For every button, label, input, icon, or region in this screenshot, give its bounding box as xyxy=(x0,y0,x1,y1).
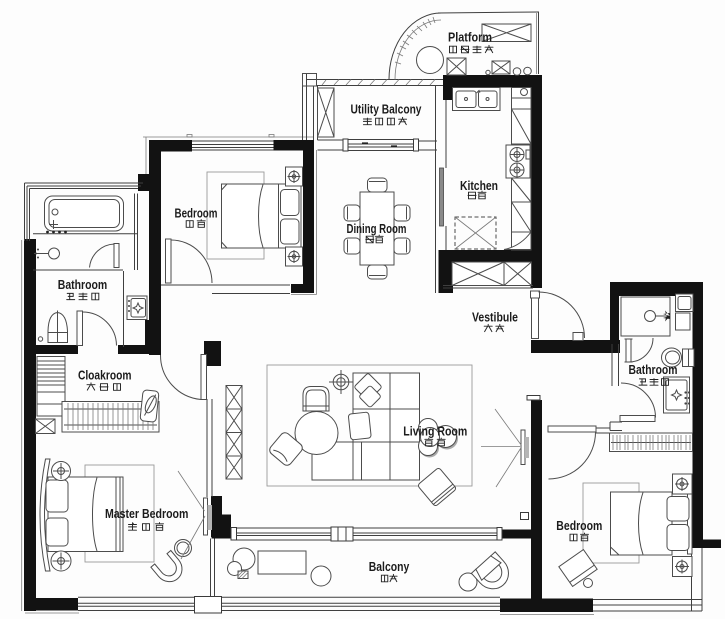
svg-text:Master Bedroom: Master Bedroom xyxy=(105,507,189,521)
svg-text:Bathroom: Bathroom xyxy=(58,278,108,292)
svg-text:Platform: Platform xyxy=(448,31,492,45)
svg-text:Dining Room: Dining Room xyxy=(347,222,407,236)
svg-text:Bathroom: Bathroom xyxy=(629,363,678,377)
svg-text:Living Room: Living Room xyxy=(403,425,467,439)
svg-text:Balcony: Balcony xyxy=(369,560,410,574)
svg-text:Cloakroom: Cloakroom xyxy=(78,369,132,383)
svg-text:Utility Balcony: Utility Balcony xyxy=(351,103,422,117)
svg-text:Bedroom: Bedroom xyxy=(556,519,602,533)
svg-text:Vestibule: Vestibule xyxy=(472,311,518,325)
svg-text:Kitchen: Kitchen xyxy=(460,179,498,193)
svg-text:Bedroom: Bedroom xyxy=(175,207,218,221)
